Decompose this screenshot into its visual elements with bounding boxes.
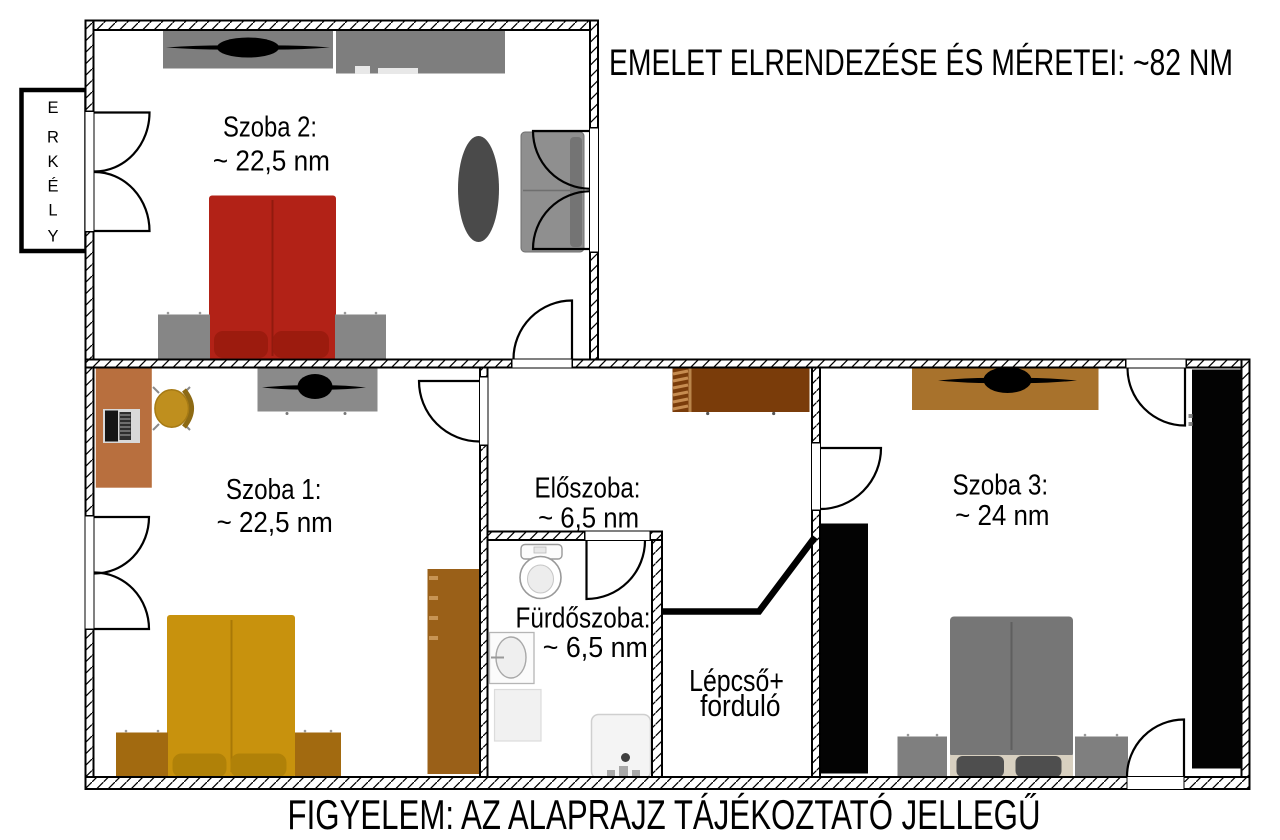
svg-text:Y: Y <box>47 227 58 245</box>
svg-text:Fürdőszoba:: Fürdőszoba: <box>516 602 651 634</box>
svg-text:EMELET ELRENDEZÉSE ÉS MÉRETEI:: EMELET ELRENDEZÉSE ÉS MÉRETEI: ~82 NM <box>609 42 1233 83</box>
svg-text:FIGYELEM: AZ ALAPRAJZ TÁJÉKOZT: FIGYELEM: AZ ALAPRAJZ TÁJÉKOZTATÓ JELLEG… <box>288 791 1041 838</box>
svg-text:Szoba 3:: Szoba 3: <box>953 470 1049 502</box>
svg-text:~ 6,5 nm: ~ 6,5 nm <box>543 632 648 664</box>
svg-text:Előszoba:: Előszoba: <box>535 472 641 504</box>
svg-text:K: K <box>47 153 58 171</box>
svg-text:L: L <box>48 202 57 220</box>
svg-text:forduló: forduló <box>700 688 780 723</box>
svg-text:~ 6,5 nm: ~ 6,5 nm <box>538 503 639 535</box>
svg-text:É: É <box>47 176 58 195</box>
svg-text:R: R <box>47 128 59 146</box>
svg-text:~ 22,5 nm: ~ 22,5 nm <box>217 507 333 539</box>
svg-text:Szoba 2:: Szoba 2: <box>223 112 317 144</box>
svg-text:~ 22,5 nm: ~ 22,5 nm <box>213 146 330 178</box>
svg-text:Szoba 1:: Szoba 1: <box>226 474 322 506</box>
svg-text:E: E <box>47 99 58 117</box>
svg-text:~ 24 nm: ~ 24 nm <box>955 500 1049 532</box>
